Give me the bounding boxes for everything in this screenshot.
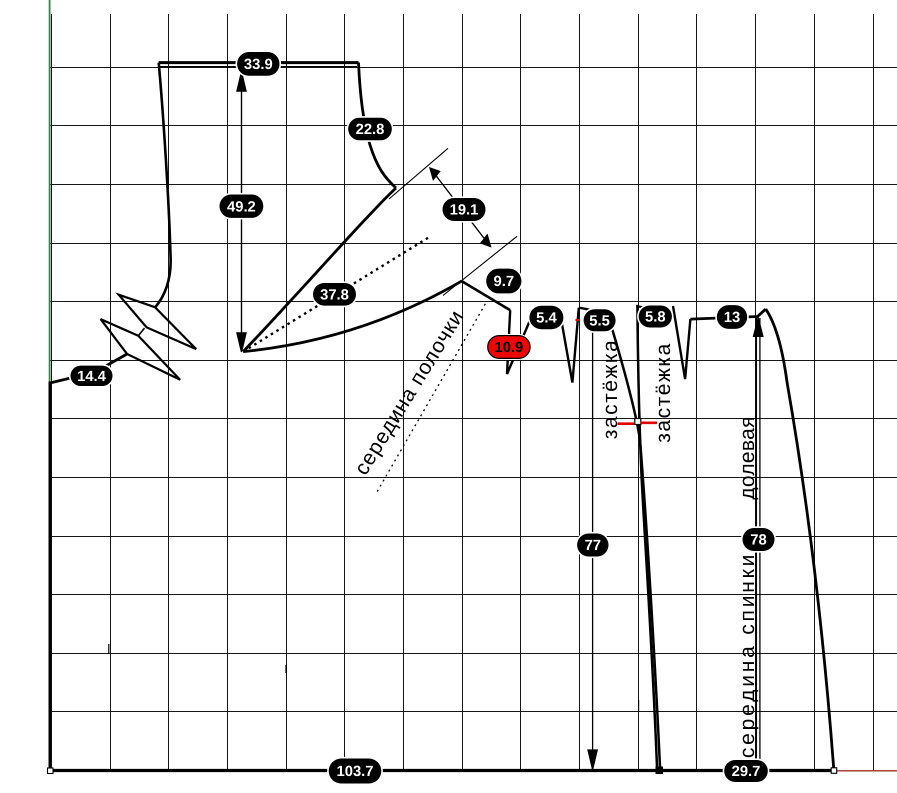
svg-text:5.5: 5.5	[589, 314, 610, 330]
svg-text:33.9: 33.9	[244, 57, 273, 73]
svg-text:37.8: 37.8	[320, 288, 349, 304]
svg-text:5.8: 5.8	[645, 310, 666, 326]
svg-text:долевая: долевая	[736, 416, 759, 499]
svg-text:22.8: 22.8	[356, 122, 385, 138]
svg-text:13: 13	[724, 310, 740, 326]
svg-text:19.1: 19.1	[450, 203, 479, 219]
svg-text:застёжка: застёжка	[599, 339, 622, 439]
svg-text:10.9: 10.9	[494, 340, 523, 356]
svg-text:14.4: 14.4	[77, 369, 107, 385]
svg-text:29.7: 29.7	[732, 764, 761, 780]
svg-text:5.4: 5.4	[536, 311, 557, 327]
svg-text:78: 78	[750, 533, 766, 549]
svg-text:застёжка: застёжка	[652, 342, 675, 442]
svg-text:49.2: 49.2	[227, 199, 256, 215]
svg-text:103.7: 103.7	[336, 764, 373, 780]
svg-text:77: 77	[585, 538, 601, 554]
svg-text:середина спинки: середина спинки	[736, 552, 759, 758]
svg-text:9.7: 9.7	[494, 274, 515, 290]
